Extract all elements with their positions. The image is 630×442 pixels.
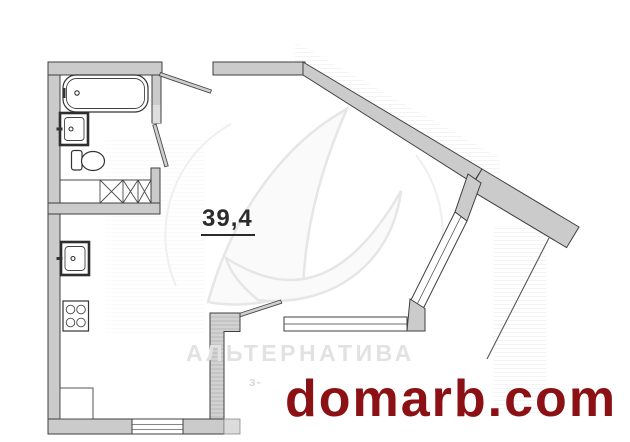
kitchen-window — [132, 419, 183, 434]
bathroom-door-jamb — [153, 105, 161, 123]
bathroom-top-wall — [48, 62, 162, 75]
bathroom-sink-icon — [57, 113, 89, 145]
agency-watermark-text: АЛЬТЕРНАТИВА — [186, 342, 415, 365]
right-side-walls — [407, 169, 579, 359]
interior-divider-wall — [210, 313, 240, 434]
kitchen-sink-tap — [57, 257, 63, 260]
bathtub-tap — [63, 88, 66, 98]
bottom-wall-left — [48, 419, 132, 434]
floorplan-canvas: 39,4 АЛЬТЕРНАТИВА з- domarb.com — [0, 0, 630, 442]
bathroom-bottom-wall — [48, 203, 160, 214]
kitchen-sink-icon — [57, 242, 90, 275]
top-wall-right — [213, 62, 305, 75]
bathroom-sink-drain — [69, 127, 73, 131]
toilet-bowl — [82, 152, 105, 171]
kitchen-fixtures — [57, 242, 94, 419]
site-watermark: domarb.com — [285, 371, 617, 428]
bathroom-right-wall-lower — [151, 168, 160, 205]
toilet-tank — [72, 151, 83, 171]
stove-burner-3 — [66, 318, 75, 327]
corner-counter — [60, 388, 93, 419]
stove-burner-2 — [77, 305, 86, 314]
bottom-wall-right — [183, 419, 224, 434]
bathroom-sink-tap — [57, 128, 63, 131]
diagonal-window-mullion — [417, 217, 461, 305]
stove-burner-1 — [66, 305, 75, 314]
left-outer-wall — [48, 62, 60, 434]
south-openings — [238, 300, 408, 331]
toilet-icon — [72, 151, 105, 171]
agency-watermark-subtext: з- — [249, 375, 262, 388]
kitchen-sink-drain — [71, 257, 75, 261]
stove-body — [63, 301, 89, 331]
bottom-wall-extension — [224, 419, 240, 434]
bathtub-icon — [63, 75, 148, 112]
entrance-door-leaf — [159, 73, 211, 94]
room-area-label: 39,4 — [201, 207, 255, 236]
stove-icon — [63, 301, 89, 331]
stove-burner-4 — [77, 318, 86, 327]
bathtub-drain — [75, 91, 79, 95]
bathroom-sink-bowl — [65, 118, 85, 141]
window-jamb-upper — [455, 174, 481, 221]
